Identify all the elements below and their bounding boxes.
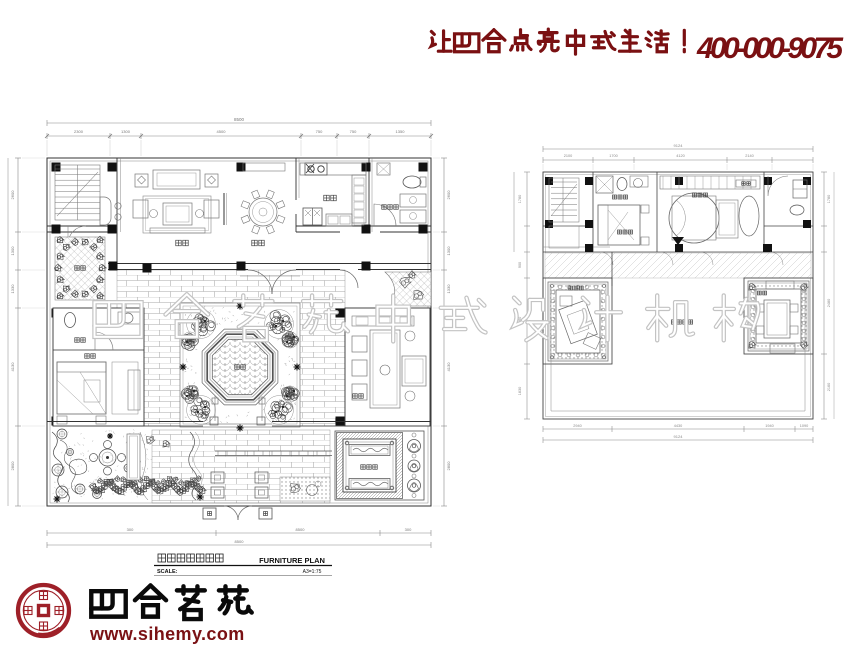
svg-text:2600: 2600 bbox=[10, 190, 15, 200]
svg-text:2600: 2600 bbox=[446, 190, 451, 200]
svg-text:1300: 1300 bbox=[121, 129, 131, 134]
svg-text:A3=1:75: A3=1:75 bbox=[303, 569, 322, 575]
svg-text:1090: 1090 bbox=[800, 424, 808, 428]
svg-text:1300: 1300 bbox=[10, 246, 15, 256]
svg-text:1780: 1780 bbox=[827, 195, 831, 203]
svg-text:2100: 2100 bbox=[564, 154, 572, 158]
svg-text:4430: 4430 bbox=[674, 424, 682, 428]
svg-text:1830: 1830 bbox=[518, 387, 522, 395]
svg-text:4130: 4130 bbox=[10, 362, 15, 372]
svg-text:2800: 2800 bbox=[10, 461, 15, 471]
svg-text:2480: 2480 bbox=[827, 299, 831, 307]
svg-text:1330: 1330 bbox=[10, 284, 15, 294]
svg-text:SCALE:: SCALE: bbox=[157, 569, 178, 575]
svg-text:www.sihemy.com: www.sihemy.com bbox=[89, 624, 245, 644]
svg-text:750: 750 bbox=[316, 129, 323, 134]
svg-text:1940: 1940 bbox=[765, 424, 773, 428]
svg-text:2300: 2300 bbox=[74, 129, 84, 134]
svg-text:9124: 9124 bbox=[674, 143, 684, 148]
svg-text:8500: 8500 bbox=[235, 539, 245, 544]
svg-text:2800: 2800 bbox=[446, 461, 451, 471]
svg-text:8500: 8500 bbox=[234, 117, 245, 122]
svg-text:1300: 1300 bbox=[446, 246, 451, 256]
svg-text:300: 300 bbox=[405, 527, 412, 532]
svg-text:2140: 2140 bbox=[745, 154, 753, 158]
svg-text:4500: 4500 bbox=[217, 129, 227, 134]
svg-text:FURNITURE PLAN: FURNITURE PLAN bbox=[259, 556, 325, 565]
svg-text:8500: 8500 bbox=[296, 527, 306, 532]
svg-text:4120: 4120 bbox=[676, 154, 684, 158]
svg-text:1330: 1330 bbox=[446, 284, 451, 294]
svg-text:4130: 4130 bbox=[446, 362, 451, 372]
svg-text:300: 300 bbox=[127, 527, 134, 532]
svg-text:900: 900 bbox=[518, 262, 522, 268]
svg-text:1700: 1700 bbox=[609, 154, 617, 158]
svg-text:9124: 9124 bbox=[674, 434, 684, 439]
svg-text:2160: 2160 bbox=[827, 383, 831, 391]
svg-text:750: 750 bbox=[350, 129, 357, 134]
svg-text:1350: 1350 bbox=[396, 129, 406, 134]
svg-text:2940: 2940 bbox=[573, 424, 581, 428]
svg-text:400-000-9075: 400-000-9075 bbox=[696, 32, 844, 65]
svg-text:1780: 1780 bbox=[518, 195, 522, 203]
